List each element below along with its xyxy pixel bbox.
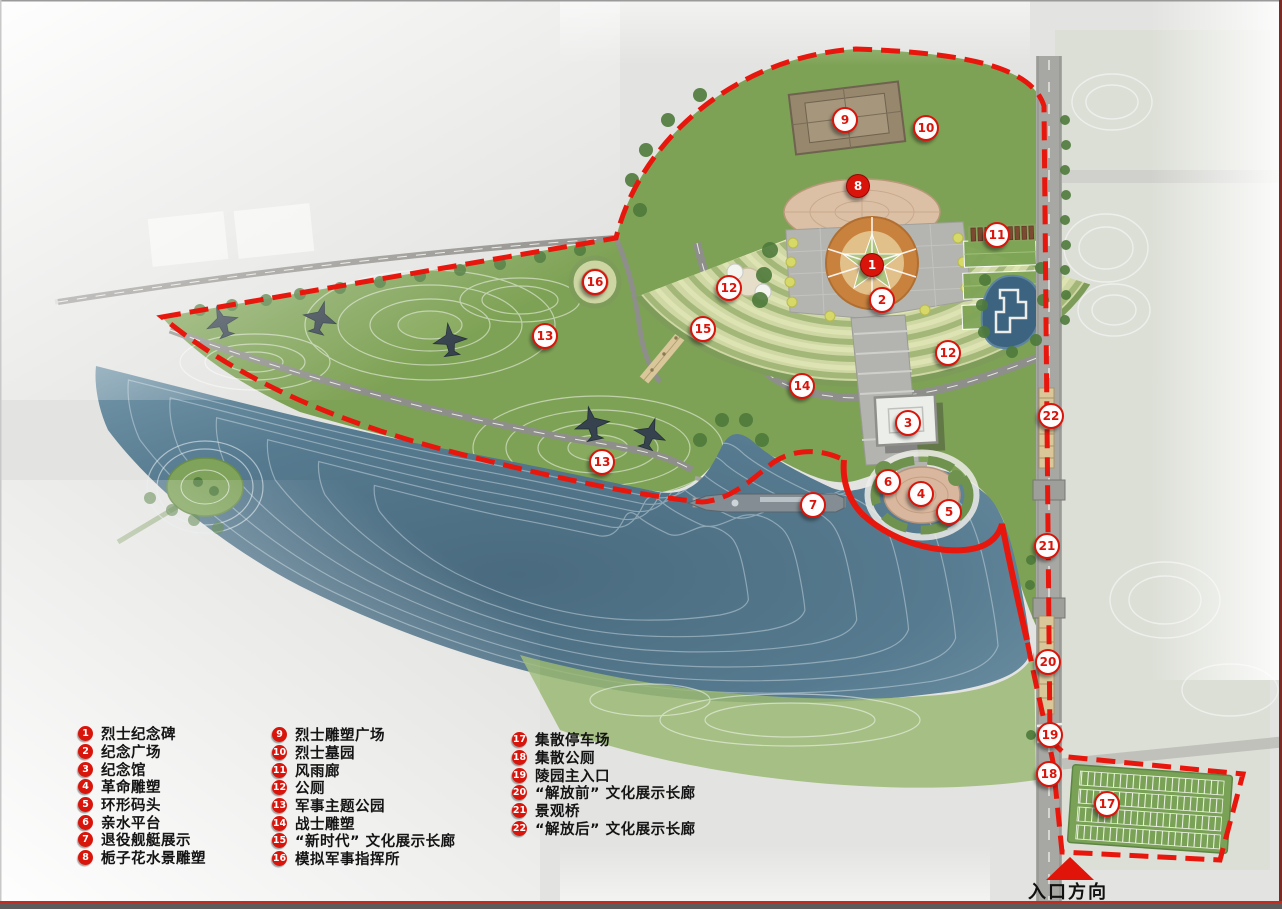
entrance-label: 入口方向	[1028, 878, 1108, 904]
entrance-arrow-icon	[1046, 857, 1094, 880]
memorial-hall	[875, 394, 937, 445]
rain-corridor	[968, 224, 1039, 243]
monument	[826, 217, 918, 309]
toilet-east	[938, 344, 954, 355]
culture-corridor-pre	[1039, 388, 1054, 468]
revolution-sculpture	[915, 488, 929, 502]
sculpture-plaza	[789, 82, 905, 155]
parking-lot	[1067, 765, 1232, 854]
plan-rendering	[0, 0, 1282, 909]
site-plan: 123456789101112121313141516171819202122 …	[0, 0, 1282, 909]
warrior-sculpture	[796, 377, 808, 389]
